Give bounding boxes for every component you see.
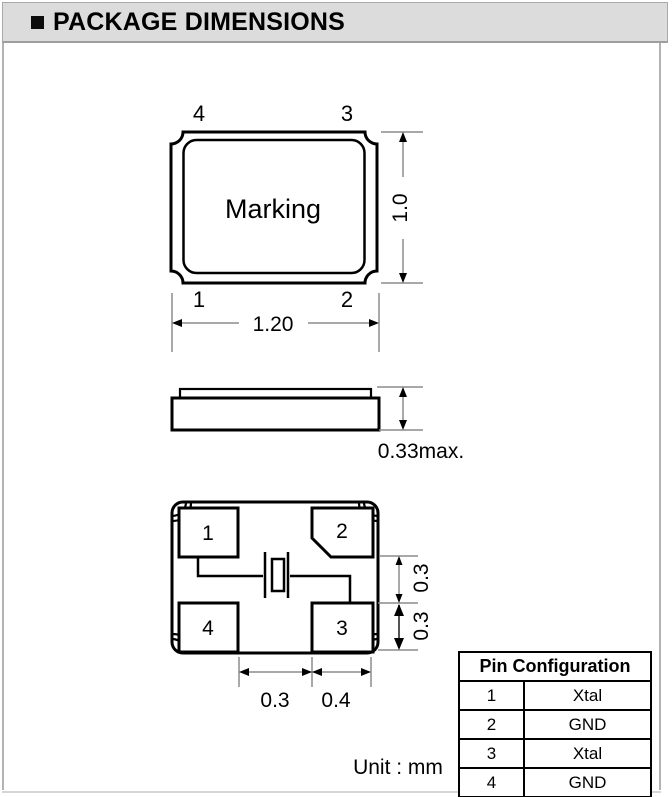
pin-number: 4 [460,769,525,796]
right-lower-dim-label: 0.3 [410,611,433,640]
bottom-view-bottom-dimensions: 0.3 0.4 [239,657,371,712]
bottom-view: 1 2 4 3 0.3 [172,502,433,712]
pin-configuration-table: Pin Configuration 1 Xtal 2 GND 3 Xtal 4 … [458,651,652,797]
pin-number: 3 [460,740,525,767]
pad-3-label: 3 [336,617,348,640]
pin-table-row: 2 GND [460,711,650,740]
pin-signal: GND [525,711,650,738]
pin-table-row: 4 GND [460,769,650,796]
bottom-left-dim-label: 0.3 [260,689,289,712]
unit-label: Unit : mm [338,756,458,780]
pin-table-title: Pin Configuration [460,653,650,682]
pin-signal: GND [525,769,650,796]
right-upper-dim-label: 0.3 [410,563,433,592]
pin-table-row: 1 Xtal [460,682,650,711]
bottom-right-dim-label: 0.4 [321,689,351,712]
pin-number: 1 [460,682,525,709]
top-view-pin2-label: 2 [341,287,353,312]
side-view-thickness-dimension: 0.33max. [377,387,464,463]
top-view-height-dim-label: 1.0 [389,193,412,222]
top-view-height-dimension: 1.0 [381,132,423,283]
pin-number: 2 [460,711,525,738]
side-view-thickness-dim-label: 0.33max. [378,440,464,463]
marking-label: Marking [225,194,321,224]
pad-2-label: 2 [336,520,348,543]
datasheet-page: PACKAGE DIMENSIONS Marking 4 3 1 2 1.0 [0,0,672,797]
pin-signal: Xtal [525,682,650,709]
pin-signal: Xtal [525,740,650,767]
bottom-view-right-dimensions: 0.3 0.3 [378,556,433,650]
top-view: Marking 4 3 1 2 1.0 [171,101,423,352]
top-view-width-dim-label: 1.20 [253,313,294,336]
top-view-pin1-label: 1 [193,287,205,312]
pin-table-row: 3 Xtal [460,740,650,769]
pad-4-label: 4 [202,617,214,640]
side-view: 0.33max. [172,387,464,463]
top-view-pin4-label: 4 [193,101,205,126]
top-view-pin3-label: 3 [341,101,353,126]
side-view-body [172,398,379,430]
pad-1-label: 1 [202,522,214,545]
